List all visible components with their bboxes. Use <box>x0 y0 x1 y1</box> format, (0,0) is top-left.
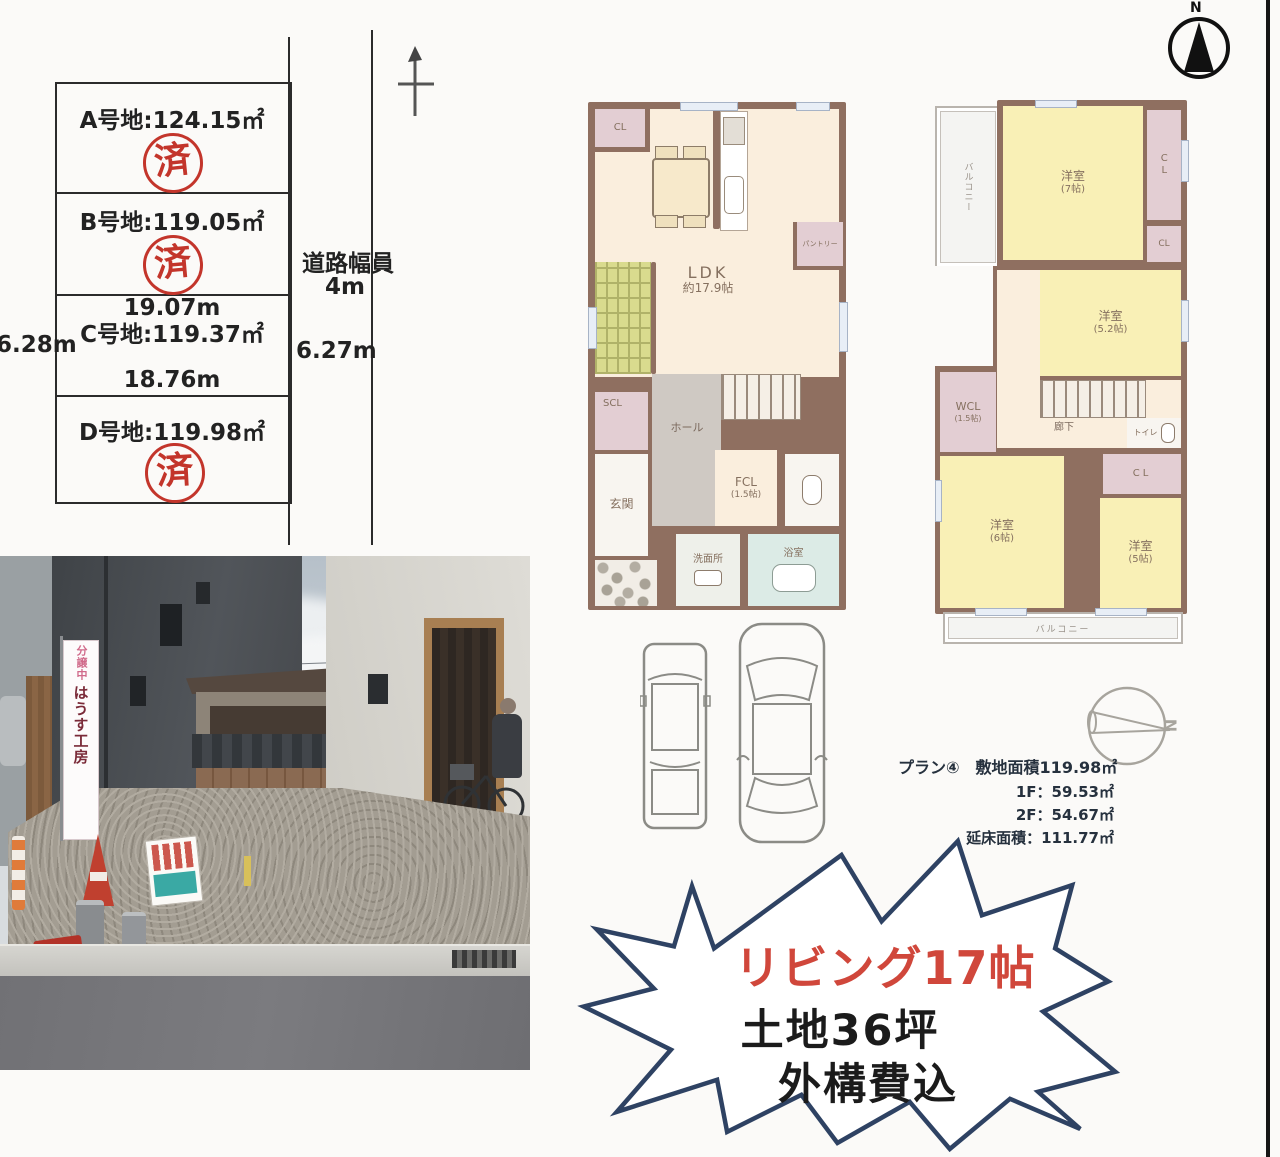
plan-info-line3: 2F：54.67㎡ <box>898 804 1114 825</box>
balcony-upper: バルコニー <box>935 106 1001 268</box>
stairs-1f <box>721 374 801 420</box>
lot-c-left-depth: 6.28m <box>0 332 77 358</box>
bathroom-label: 浴室 <box>784 548 804 560</box>
dining-table-icon <box>652 158 710 218</box>
room-6jo: 洋室 (6帖) <box>940 456 1064 608</box>
tatami-area <box>595 262 651 374</box>
room-5jo: 洋室 (5帖) <box>1100 498 1181 608</box>
hall-label: ホール <box>662 420 712 436</box>
fcl-label-line1: FCL <box>735 476 757 490</box>
wcl-label-line2: (1.5帖) <box>955 414 982 423</box>
plan-info-line2: 1F：59.53㎡ <box>898 781 1114 802</box>
room-toilet-1f <box>785 454 839 526</box>
cone-band <box>90 872 107 881</box>
banner-top-text: 分譲中 <box>73 645 89 681</box>
window <box>1181 140 1189 182</box>
room-genkan: 玄関 <box>595 454 648 556</box>
room-scl: SCL <box>595 392 648 450</box>
pantry-label: パントリー <box>802 240 837 248</box>
washbasin-icon <box>694 570 722 586</box>
window <box>1181 300 1189 342</box>
sign-teal-panel <box>153 871 197 897</box>
window <box>680 102 738 111</box>
ldk-label-line2: 約17.9帖 <box>683 282 734 296</box>
boundary-line-extension <box>288 37 290 545</box>
hallway-label-text: 廊下 <box>1054 422 1074 434</box>
room-ldk-label: LDK 約17.9帖 <box>658 260 758 300</box>
sedan-car-icon <box>735 620 829 846</box>
room-6jo-line2: (6帖) <box>990 533 1014 545</box>
drainpipe <box>104 556 108 806</box>
road-width-label: 道路幅員 <box>302 244 394 278</box>
sidewalk <box>0 944 530 978</box>
entrance-stone-path <box>595 560 657 606</box>
room-fcl: FCL (1.5帖) <box>715 450 777 526</box>
room-hall <box>652 374 721 526</box>
room-cl-small: CL <box>1147 226 1181 262</box>
window <box>1095 608 1147 616</box>
small-car-icon <box>640 640 712 832</box>
corridor-2f <box>997 270 1040 448</box>
lot-c-bottom-width: 18.76m <box>60 367 284 393</box>
bg-house-roof2 <box>210 706 335 736</box>
road <box>0 976 530 1070</box>
room-52jo: 洋室 (5.2帖) <box>1040 270 1181 376</box>
building-window <box>160 604 182 646</box>
toilet-icon <box>1161 423 1175 443</box>
chair-icon <box>655 146 678 159</box>
cl-tall-label: CL <box>1158 153 1170 177</box>
balcony-upper-label: バルコニー <box>937 108 999 266</box>
scl-label: SCL <box>603 398 622 410</box>
sales-banner: 分譲中 はうす工房 <box>63 640 99 840</box>
floor-plan-2f: バルコニー 洋室 (7帖) CL CL 洋室 (5.2帖) 廊下 WCL (1.… <box>935 100 1187 652</box>
floor-plan-1f: LDK 約17.9帖 CL パントリー ホール SCL <box>588 102 848 622</box>
parked-van <box>0 696 26 766</box>
chair-icon <box>683 215 706 228</box>
sign-red-text-marks <box>151 841 193 871</box>
yellow-stake <box>244 856 251 886</box>
north-compass-icon <box>1166 12 1232 82</box>
room-washroom: 洗面所 <box>676 534 740 606</box>
plan-compass-n: N <box>1161 719 1180 732</box>
room-5jo-line1: 洋室 <box>1128 540 1152 554</box>
cl-small-label: CL <box>1158 239 1169 249</box>
2f-outside-notch <box>935 266 993 366</box>
genkan-label: 玄関 <box>609 498 633 512</box>
balcony-bottom-label: バルコニー <box>1036 622 1091 635</box>
small-north-arrow-icon <box>394 44 438 120</box>
starburst-line1: リビング17帖 <box>660 938 1110 992</box>
starburst-line3: 外構費込 <box>668 1056 1068 1106</box>
lot-b-label: B号地:119.05㎡ <box>60 206 284 234</box>
room-wcl: WCL (1.5帖) <box>940 372 996 452</box>
pedestrian-head <box>500 698 516 714</box>
room-toilet-2f: トイレ <box>1127 418 1181 448</box>
starburst-line2: 土地36坪 <box>640 1002 1040 1052</box>
site-fence <box>192 734 337 768</box>
room-cl-1f: CL <box>595 109 650 152</box>
kitchen-wall <box>713 109 720 229</box>
window <box>975 608 1027 616</box>
room-bathroom: 浴室 <box>748 534 839 606</box>
striped-pole <box>12 836 25 910</box>
room-52jo-line2: (5.2帖) <box>1094 324 1128 336</box>
window <box>1035 100 1077 108</box>
drain-grate <box>452 950 516 968</box>
tatami-wall <box>651 262 656 374</box>
chair-icon <box>655 215 678 228</box>
toilet-icon <box>802 475 822 505</box>
plan-info-line1: プラン④ 敷地面積119.98㎡ <box>898 754 1114 778</box>
room-cl-tall: CL <box>1147 110 1181 220</box>
brick-wall <box>196 768 338 790</box>
building-window <box>130 676 146 706</box>
stove-icon <box>723 117 745 145</box>
lot-c-right-depth: 6.27m <box>296 338 377 364</box>
lot-divider <box>55 395 288 397</box>
room-7jo-line2: (7帖) <box>1061 184 1085 196</box>
fcl-label-line2: (1.5帖) <box>731 490 761 500</box>
room-52jo-line1: 洋室 <box>1098 310 1122 324</box>
washroom-label: 洗面所 <box>693 554 723 566</box>
banner-main-text: はうす工房 <box>71 685 92 765</box>
lot-c-label: C号地:119.37㎡ <box>60 319 284 345</box>
white-building-window <box>368 674 388 704</box>
toilet-2f-label: トイレ <box>1134 428 1158 437</box>
lot-a-label: A号地:124.15㎡ <box>60 104 284 132</box>
room-7jo: 洋室 (7帖) <box>1003 106 1143 260</box>
lot-diagram: A号地:124.15㎡ 済 B号地:119.05㎡ 済 19.07m C号地:1… <box>0 0 460 560</box>
lot-d-label: D号地:119.98㎡ <box>60 416 284 444</box>
room-7jo-line1: 洋室 <box>1061 170 1085 184</box>
sink-icon <box>724 176 744 214</box>
room-5jo-line2: (5帖) <box>1128 554 1152 566</box>
ldk-label-line1: LDK <box>688 264 729 282</box>
window <box>935 480 942 522</box>
chair-icon <box>683 146 706 159</box>
window <box>588 307 597 349</box>
room-cl-wide: CL <box>1103 454 1181 494</box>
room-6jo-line1: 洋室 <box>990 519 1014 533</box>
hallway-label: 廊下 <box>1041 420 1087 436</box>
traffic-cone <box>82 834 114 906</box>
road-edge-line <box>371 30 373 545</box>
road-width-value: 4m <box>325 274 365 300</box>
north-compass: N <box>1166 2 1232 82</box>
room-pantry: パントリー <box>793 222 843 270</box>
hall-label-text: ホール <box>671 422 704 435</box>
flyer-canvas: N A号地:124.15㎡ 済 B号地:119.05㎡ 済 19.07m C号地… <box>0 0 1280 1157</box>
site-photo: 分譲中 はうす工房 <box>0 556 530 1070</box>
window <box>839 302 848 352</box>
plan-info: プラン④ 敷地面積119.98㎡ 1F：59.53㎡ 2F：54.67㎡ 延床面… <box>898 754 1114 848</box>
bathtub-icon <box>772 564 816 592</box>
page-right-border <box>1266 0 1270 1157</box>
window <box>796 102 830 111</box>
building-window <box>196 582 210 604</box>
wcl-label-line1: WCL <box>956 401 981 414</box>
stairs-2f <box>1040 380 1146 418</box>
balcony-bottom: バルコニー <box>943 612 1183 644</box>
cl-1f-label: CL <box>614 122 627 134</box>
site-sign <box>145 835 204 906</box>
cl-wide-label: CL <box>1133 468 1152 480</box>
